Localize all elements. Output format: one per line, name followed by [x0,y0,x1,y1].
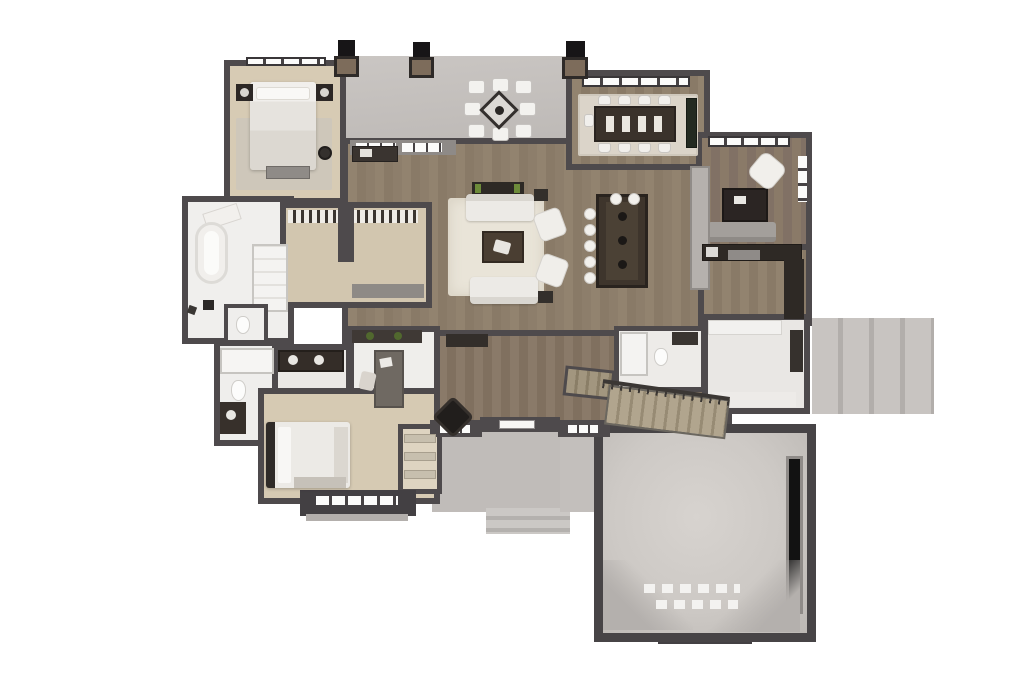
patio-pillar-base [562,57,588,79]
dining-chair [658,95,671,105]
mudroom-cabinet [790,330,803,372]
patio-chair [492,127,509,141]
island-pendant [618,212,627,221]
patio-pillar-base [409,57,434,78]
greatroom-side-table [538,291,553,303]
patio-chair [515,124,532,138]
freestanding-tub [195,222,228,284]
patio-chair [468,124,485,138]
patio-pillar-base [334,56,359,77]
closet-divider-wall [338,208,354,262]
patio-chair [519,102,536,116]
bar-stool [584,256,596,268]
dining-chair [598,95,611,105]
garage-vent-row [656,600,738,609]
hallway-dresser [352,146,398,162]
media-console-plant [514,184,520,193]
greatroom-sofa [470,277,538,304]
garage-shading [700,560,800,632]
bedroom2-window [246,57,326,66]
patio-table-centerpiece [495,106,504,115]
bedroom2-stool [318,146,332,160]
vanity-sink [288,355,298,365]
closet-shelf [352,284,424,298]
bar-stool [628,193,640,205]
hall-console [446,334,488,347]
island-pendant [618,260,627,269]
greatroom-window-2 [402,143,442,152]
walk-in-shower [252,244,288,312]
dining-chair [618,95,631,105]
floor-plan-render [0,0,1024,683]
laundry-plant [394,332,402,340]
nook-shelf [404,452,436,461]
closet-hanging-rod [288,210,342,223]
bath2-sink [226,410,236,420]
hallway-dresser-decor [360,149,372,157]
dining-chair [658,143,671,153]
den-desk [722,188,768,222]
toilet [654,348,668,366]
master-bed-bench [294,477,346,488]
patio-chair [468,80,485,94]
kitchen-counter-side [784,259,804,319]
front-door [499,420,535,429]
dining-cabinet [686,98,697,148]
side-stoop [812,318,934,414]
closet-hanging-rod [352,210,418,223]
master-bed-throw [334,427,348,483]
patio-pillar-cap [413,42,430,58]
bar-stool [584,240,596,252]
master-window-bay-sill [306,514,408,521]
laundry-plant [366,332,374,340]
garage-vent-row [644,584,740,593]
den-window-right [798,156,807,202]
bedroom2-bench [266,166,310,179]
dining-chair [638,143,651,153]
bar-stool [610,193,622,205]
den-desk-paper [734,196,746,204]
patio-pillar-cap [338,40,355,57]
mudroom-bench [708,320,782,335]
front-wing-right-window [568,425,598,433]
media-console-plant [475,184,481,193]
dining-chair [598,143,611,153]
nook-shelf [404,434,436,443]
hallbath-vanity [672,332,698,345]
den-window-top [708,136,790,147]
bath-mat [203,300,214,310]
dining-chair [584,114,594,127]
greatroom-side-table [534,189,548,201]
master-window-bay-glass [316,496,398,505]
dining-chair [638,95,651,105]
bar-stool [584,224,596,236]
kitchen-range-hood [728,250,760,260]
hallbath-shower [620,332,648,376]
laundry-counter [352,330,422,343]
patio-chair [492,78,509,92]
bar-stool [584,208,596,220]
greatroom-sofa [466,194,534,221]
island-pendant [618,236,627,245]
nook-shelf [404,470,436,479]
toilet [231,380,246,401]
vanity-sink [314,355,324,365]
nightstand-lamp [320,88,329,97]
bath2-shower [220,348,274,374]
kitchen-perimeter-counter [690,166,710,290]
dining-chair [618,143,631,153]
den-sofa [708,222,776,242]
garage-shading [603,560,693,630]
bar-stool [584,272,596,284]
patio-chair [515,80,532,94]
dining-window [582,76,690,87]
bedroom2-pillows [256,87,310,100]
kitchen-appliance [706,247,718,257]
porch-steps [486,508,570,534]
nightstand-lamp [240,88,249,97]
dining-place-settings [606,116,664,132]
toilet [236,316,250,334]
master-bed-pillows [278,427,291,483]
